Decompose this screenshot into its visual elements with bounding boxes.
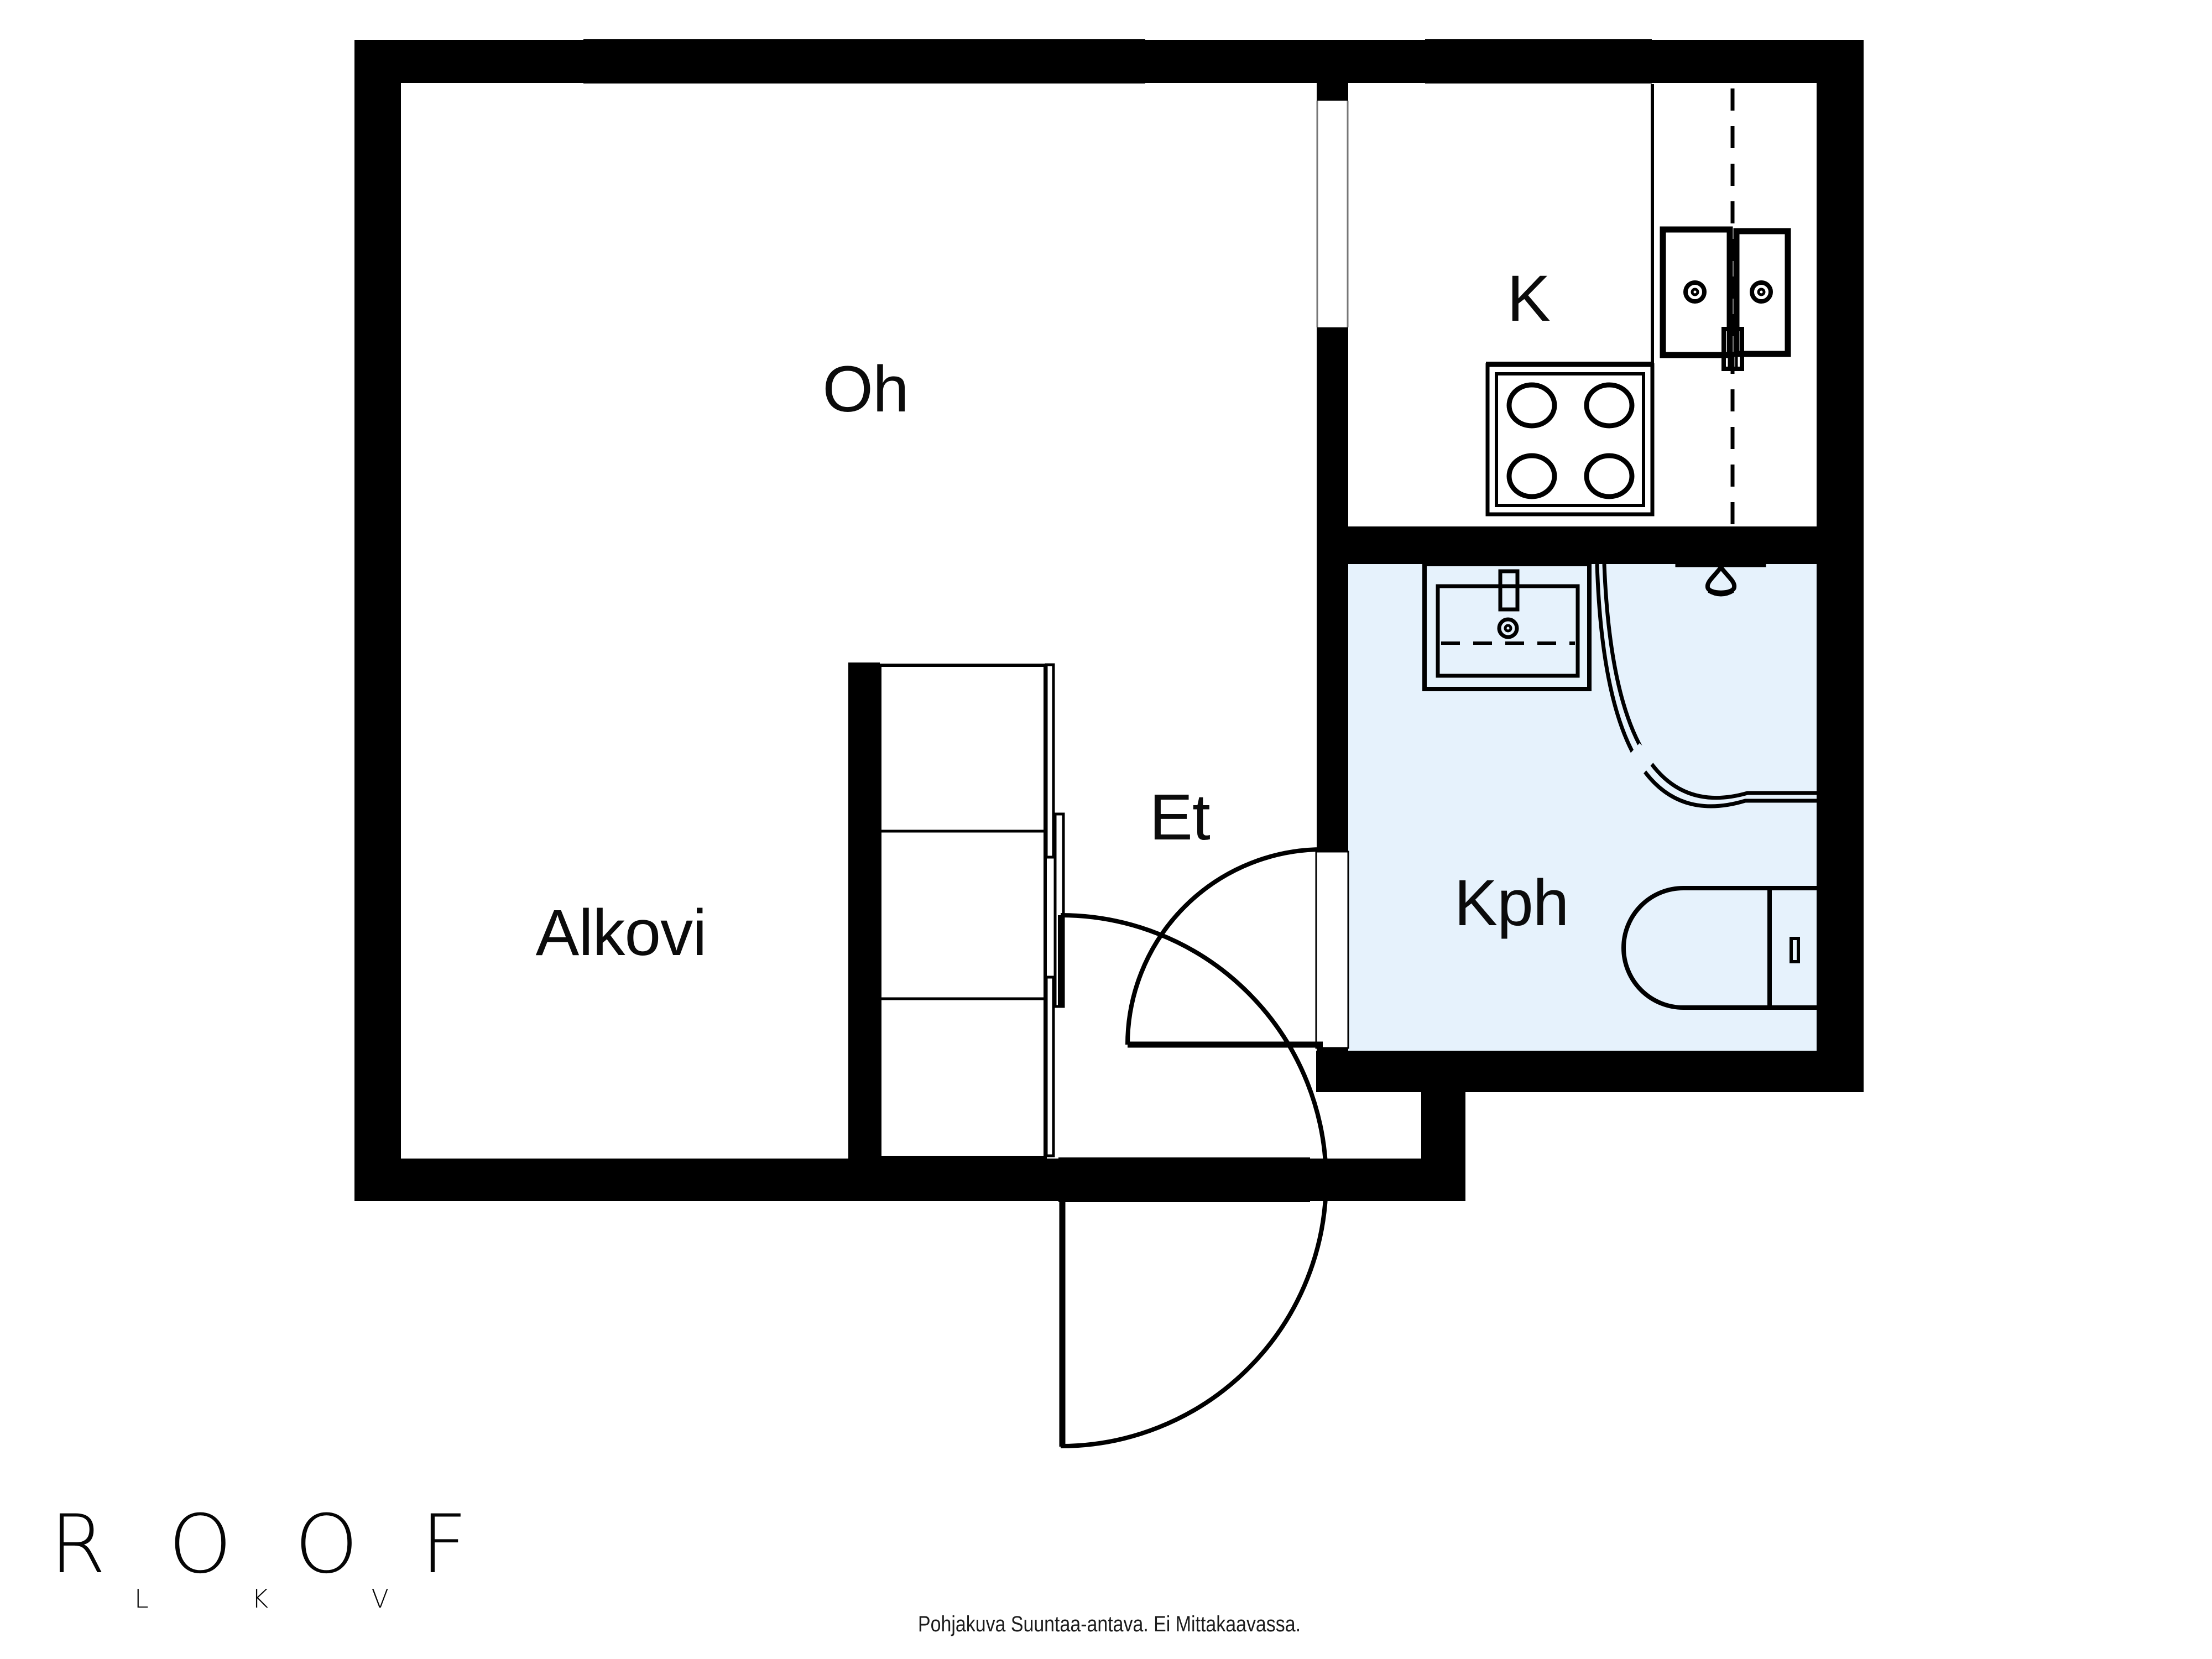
stove-inner: [1496, 374, 1644, 505]
room-label-kitchen: K: [1507, 262, 1550, 335]
wall-kitchen-bathroom-left: [1317, 327, 1348, 852]
sink-drain-icon: [1692, 289, 1698, 295]
stove-icon: [1488, 365, 1652, 514]
disclaimer-text: Pohjakuva Suuntaa-antava. Ei Mittakaavas…: [918, 1612, 1301, 1636]
burner-icon: [1509, 456, 1554, 497]
wall-alcove: [848, 662, 880, 1201]
closet-box: [880, 665, 1045, 1157]
sink-drain-icon: [1752, 283, 1771, 301]
bathroom-door: [1128, 849, 1348, 1048]
wall-bathroom-bottom: [1316, 1051, 1864, 1092]
double-sink-icon: [1663, 229, 1788, 369]
wall-kitchen-bath-divider: [1317, 526, 1817, 564]
wall-bathroom-left-stub: [1317, 1048, 1348, 1092]
brand-logo: ROOF L K V: [50, 1498, 467, 1614]
burner-icon: [1509, 385, 1554, 426]
room-label-entry-hall: Et: [1149, 781, 1210, 854]
wall-bottom: [354, 1159, 1465, 1201]
burner-icon: [1587, 385, 1632, 426]
floor-plan-drawing: Oh K Alkovi Et Kph ROOF L K V Pohjakuva …: [0, 0, 2212, 1659]
wall-left: [354, 40, 401, 1201]
room-label-living-room: Oh: [822, 353, 908, 426]
burner-icon: [1587, 456, 1632, 497]
floor-plan-page: Oh K Alkovi Et Kph ROOF L K V Pohjakuva …: [0, 0, 2212, 1659]
room-label-bathroom: Kph: [1454, 867, 1569, 940]
room-label-alcove: Alkovi: [536, 896, 707, 969]
logo-text: ROOF: [50, 1498, 467, 1592]
wall-right: [1817, 40, 1864, 1092]
sliding-door-panel: [1046, 977, 1053, 1156]
bathroom-door-arc: [1128, 849, 1323, 1045]
stove-outer: [1488, 365, 1652, 514]
sliding-door-panel: [1046, 665, 1053, 857]
kitchen-opening: [1317, 101, 1348, 327]
sink-drain-icon: [1686, 283, 1704, 301]
bathroom-door-opening: [1316, 852, 1348, 1048]
closet-sliding-doors: [880, 665, 1063, 1157]
sliding-door-handle-bar: [1058, 915, 1062, 1006]
wall-step-bottom-right: [1421, 1092, 1465, 1201]
sink-drain-icon: [1759, 289, 1764, 295]
wall-kitchen-divider-stub: [1317, 83, 1348, 101]
bathroom-floor: [1348, 564, 1817, 1051]
